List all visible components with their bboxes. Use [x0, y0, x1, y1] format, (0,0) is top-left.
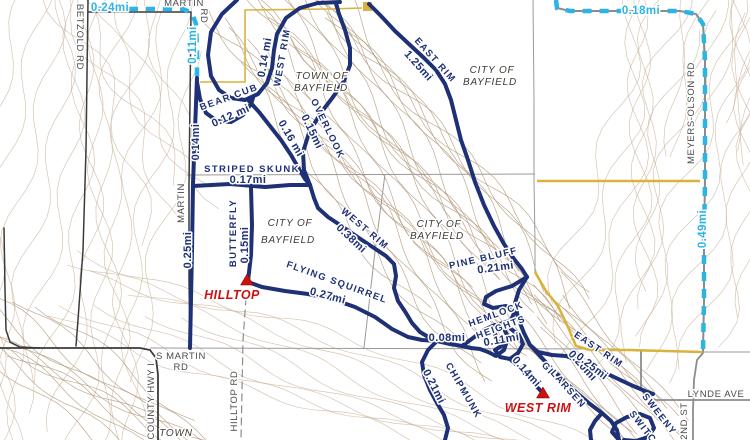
contours-left: [0, 0, 55, 440]
label-dist-butterfly: 0.15mi: [239, 227, 251, 264]
contours-right: [678, 0, 750, 370]
label-road-betzold: BETZOLD RD: [74, 4, 85, 70]
label-dist-betzold-connector: 0.24mi: [91, 2, 129, 14]
label-road-s-martin-1: S MARTIN: [156, 351, 206, 362]
contours-bottom: [77, 250, 698, 440]
trail-map: 0.24mi0.11mi0.18mi0.49mi0.14mi0.25miBEAR…: [0, 0, 750, 440]
city-boundary-line: [533, 0, 535, 272]
road-s-martin-county-hwy: [0, 348, 158, 440]
label-poi-hilltop: HILLTOP: [204, 288, 260, 302]
contours-right: [562, 0, 649, 353]
label-city-town-bottom: TOWN: [159, 428, 193, 439]
label-dist-hemlock-connector: 0.08mi: [429, 332, 466, 344]
label-city-ne-2: BAYFIELD: [463, 77, 517, 88]
roads-layer: [0, 0, 750, 440]
contours-ridge: [241, 62, 458, 337]
label-dist-martin-upper: 0.14mi: [190, 124, 202, 161]
contours-right: [553, 0, 646, 344]
contours-layer: [0, 0, 750, 440]
label-road-martin-top: MARTIN: [164, 0, 204, 9]
label-city-ne-1: CITY OF: [470, 65, 515, 76]
label-city-w-1: CITY OF: [268, 218, 313, 229]
road-hilltop: [241, 298, 246, 440]
label-dist-striped-skunk: 0.17mi: [230, 174, 267, 186]
label-name-butterfly: BUTTERFLY: [228, 199, 239, 267]
label-dist-meyers-road: 0.49mi: [697, 210, 709, 248]
label-dist-west-rim-spur: 0.14mi: [510, 354, 543, 389]
contours-right: [670, 0, 750, 384]
contours-ne-corner: [740, 0, 750, 165]
label-city-e-1: CITY OF: [417, 219, 462, 230]
route-meyers-olson: [556, 0, 705, 350]
label-road-hilltop-rd: HILLTOP RD: [229, 371, 240, 432]
trail-martin: [190, 78, 197, 348]
contours-bottomleft: [0, 333, 188, 440]
contours-right: [640, 0, 748, 347]
contours-right: [548, 0, 641, 304]
label-city-town-of: TOWN OF: [296, 71, 349, 82]
label-road-county-hwy: COUNTY HWY I: [146, 362, 157, 439]
contours-bottomleft: [0, 300, 227, 440]
label-city-w-2: BAYFIELD: [261, 235, 315, 246]
label-poi-west-rim: WEST RIM: [505, 401, 572, 415]
contours-ridge: [263, 84, 431, 308]
label-road-martin: MARTIN: [176, 183, 187, 223]
label-road-martin-top-rd: RD: [198, 9, 209, 24]
label-dist-meyers-top: 0.18mi: [622, 5, 660, 17]
road-meyers-olson: [556, 0, 705, 351]
route-betzold-connector: [95, 9, 197, 80]
road-left-edge: [4, 228, 40, 348]
label-dist-martin-connector: 0.11mi: [187, 26, 199, 64]
label-name-chipmunk: CHIPMUNK: [443, 361, 484, 421]
label-city-town-of-bayfield: BAYFIELD: [294, 83, 348, 94]
label-road-s-martin-2: RD: [174, 362, 189, 373]
label-road-lynde-ave: LYNDE AVE: [688, 389, 745, 400]
label-road-2nd-st: 2ND ST: [679, 402, 690, 439]
label-road-meyers-olson: MEYERS-OLSON RD: [686, 62, 697, 164]
trail-sweeny-stub: [590, 413, 602, 440]
contours-topleft: [90, 6, 193, 162]
section-line-h2: [150, 348, 620, 349]
contours-right: [735, 36, 750, 317]
label-city-e-2: BAYFIELD: [410, 231, 464, 242]
trail-map-svg: 0.24mi0.11mi0.18mi0.49mi0.14mi0.25miBEAR…: [0, 0, 750, 440]
hilltop-trailhead-marker: [241, 274, 254, 285]
label-dist-martin-lower: 0.25mi: [182, 232, 194, 269]
